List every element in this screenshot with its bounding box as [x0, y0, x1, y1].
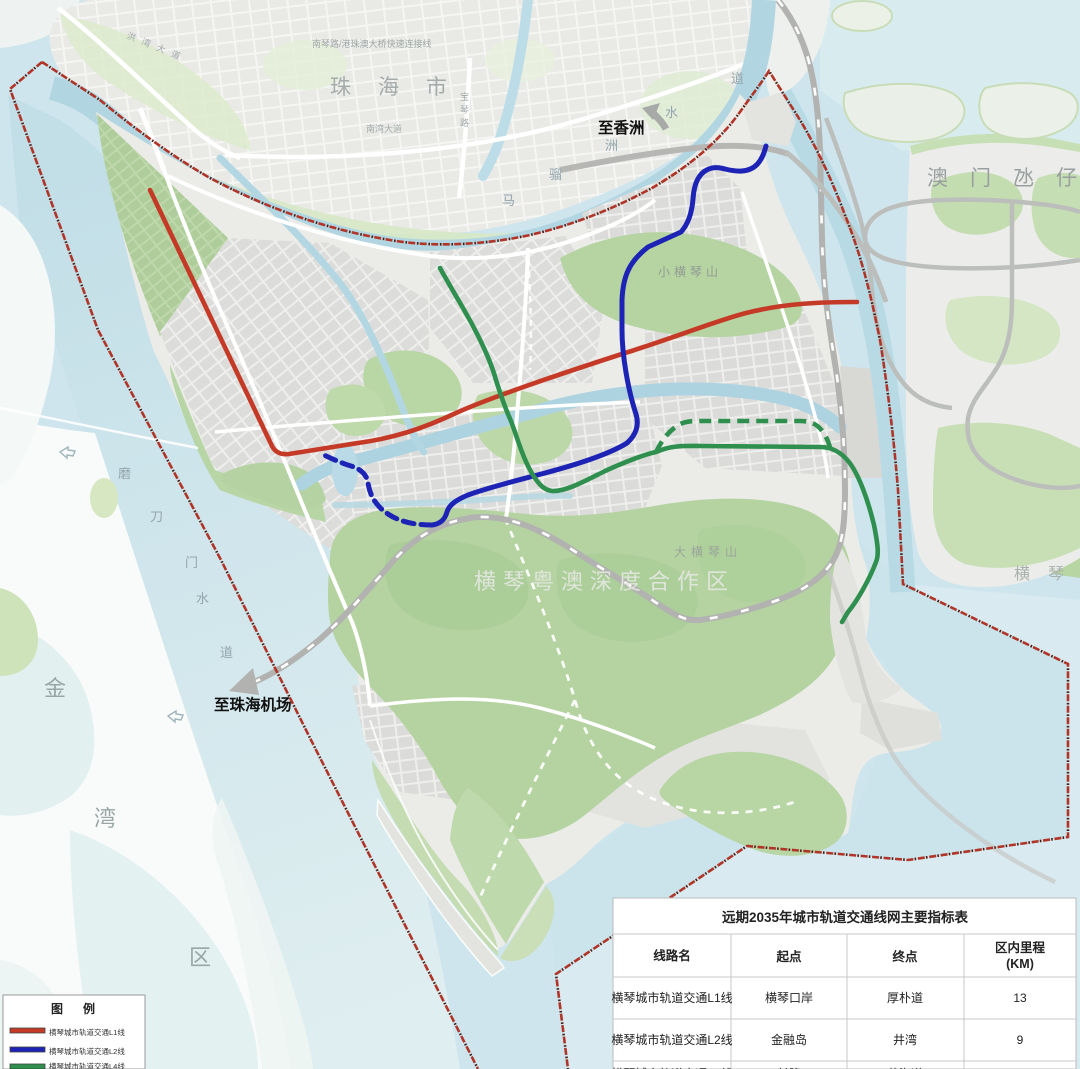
svg-text:宝琴路: 宝琴路 [459, 91, 469, 131]
svg-text:南琴路/港珠澳大桥快速连接线: 南琴路/港珠澳大桥快速连接线 [312, 38, 432, 49]
svg-text:9: 9 [1017, 1033, 1024, 1047]
svg-text:厚朴道: 厚朴道 [887, 990, 923, 1005]
svg-text:刀: 刀 [150, 509, 163, 524]
svg-text:横琴口岸: 横琴口岸 [765, 991, 813, 1005]
svg-text:珠海市: 珠海市 [330, 76, 474, 99]
svg-text:横琴粤澳深度合作区: 横琴粤澳深度合作区 [474, 569, 735, 594]
svg-text:小横琴山: 小横琴山 [658, 265, 722, 279]
svg-text:道: 道 [220, 645, 233, 660]
svg-text:骝: 骝 [549, 167, 562, 182]
svg-text:横琴城市轨道交通L2线: 横琴城市轨道交通L2线 [49, 1046, 125, 1056]
svg-text:大横琴山: 大横琴山 [674, 545, 742, 559]
svg-text:道: 道 [731, 71, 744, 86]
svg-text:横琴城市轨道交通L2线: 横琴城市轨道交通L2线 [611, 1032, 732, 1047]
svg-text:磨: 磨 [118, 466, 131, 481]
svg-text:马: 马 [502, 193, 515, 208]
svg-text:金融岛: 金融岛 [771, 1032, 807, 1047]
svg-text:水: 水 [196, 591, 209, 606]
svg-text:金: 金 [44, 676, 66, 701]
svg-text:洲: 洲 [605, 138, 618, 153]
svg-text:远期2035年城市轨道交通线网主要指标表: 远期2035年城市轨道交通线网主要指标表 [722, 909, 969, 925]
svg-text:至香洲: 至香洲 [598, 119, 645, 137]
svg-text:13: 13 [1013, 991, 1027, 1005]
svg-text:(KM): (KM) [1006, 957, 1034, 971]
svg-text:澳门氹仔: 澳门氹仔 [927, 167, 1080, 190]
svg-text:横琴城市轨道交通L4线: 横琴城市轨道交通L4线 [49, 1061, 125, 1069]
svg-text:门: 门 [185, 555, 198, 570]
svg-text:横琴城市轨道交通L1线: 横琴城市轨道交通L1线 [49, 1027, 125, 1037]
svg-text:至珠海机场: 至珠海机场 [214, 695, 292, 714]
svg-text:区内里程: 区内里程 [995, 940, 1046, 955]
svg-text:横琴: 横琴 [1014, 565, 1080, 583]
svg-text:区: 区 [189, 945, 211, 970]
svg-text:横琴城市轨道交通L1线: 横琴城市轨道交通L1线 [611, 990, 732, 1005]
svg-text:水: 水 [665, 105, 678, 120]
svg-text:南湾大道: 南湾大道 [366, 123, 402, 134]
svg-text:井湾: 井湾 [893, 1032, 917, 1047]
svg-text:起点: 起点 [775, 949, 802, 964]
svg-text:图例: 图例 [51, 1001, 115, 1016]
svg-text:线路名: 线路名 [653, 948, 691, 963]
svg-text:湾: 湾 [94, 806, 116, 831]
svg-text:终点: 终点 [892, 949, 918, 964]
